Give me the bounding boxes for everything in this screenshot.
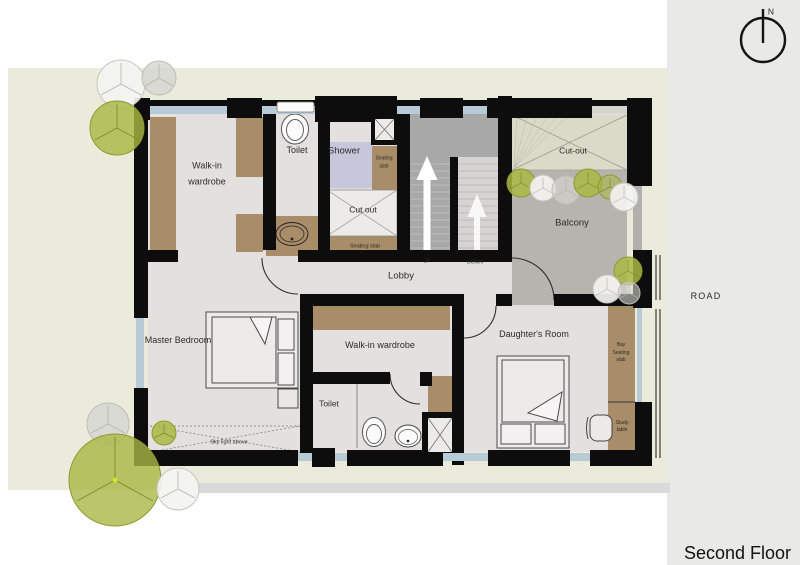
- staircase: [398, 100, 498, 258]
- cutout-large-area: [512, 115, 627, 170]
- tree-white: [610, 183, 638, 211]
- floor-plan-graphic: [0, 0, 800, 565]
- tree-white: [157, 468, 199, 510]
- nightstand: [278, 389, 298, 408]
- daughter-bed: [497, 356, 569, 448]
- toilet1-cistern: [277, 102, 314, 112]
- toilet2-basin-icon: [395, 425, 421, 447]
- tree-green-large: [69, 434, 161, 526]
- tree-white: [593, 275, 621, 303]
- tree-gray: [142, 61, 176, 95]
- toilet2-wc-icon: [363, 418, 386, 447]
- floor-plan-page: Walk-in wardrobe Toilet Shower Seating s…: [0, 0, 800, 565]
- tree-gray: [618, 282, 640, 304]
- tree-green-small: [152, 421, 176, 445]
- north-compass-icon: [741, 9, 785, 62]
- toilet1-wc-icon: [282, 114, 309, 144]
- tree-green: [574, 169, 602, 197]
- study-chair: [587, 415, 613, 441]
- cutout-small-area: [327, 190, 397, 236]
- tree-green: [90, 101, 144, 155]
